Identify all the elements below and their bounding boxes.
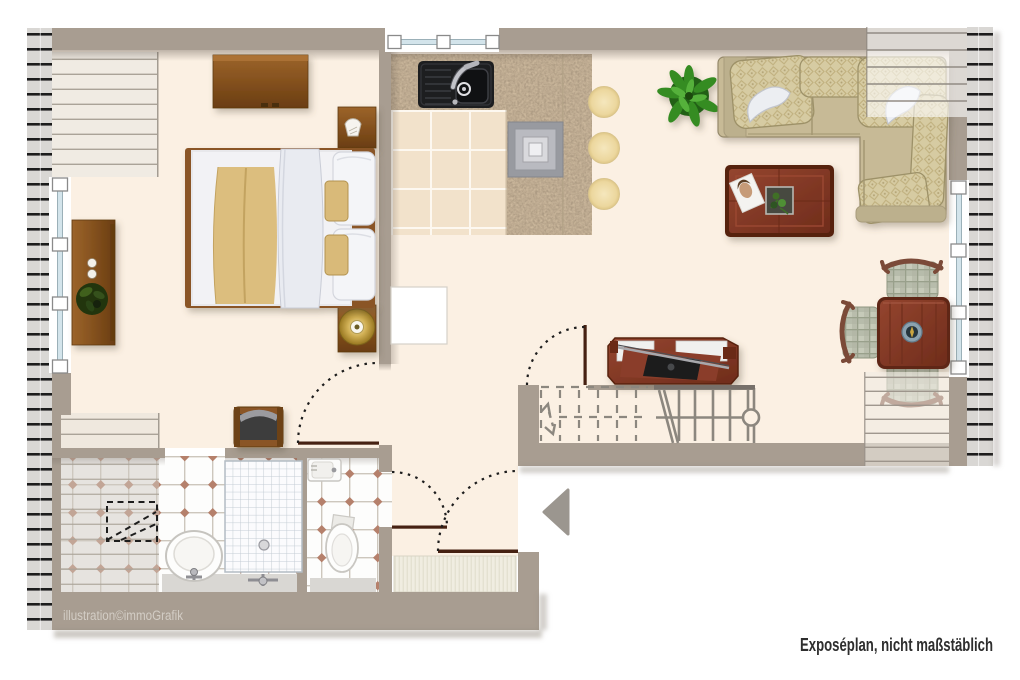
- svg-text:illustration©immoGrafik: illustration©immoGrafik: [63, 608, 183, 623]
- svg-text:Exposéplan, nicht maßstäblich: Exposéplan, nicht maßstäblich: [800, 634, 993, 655]
